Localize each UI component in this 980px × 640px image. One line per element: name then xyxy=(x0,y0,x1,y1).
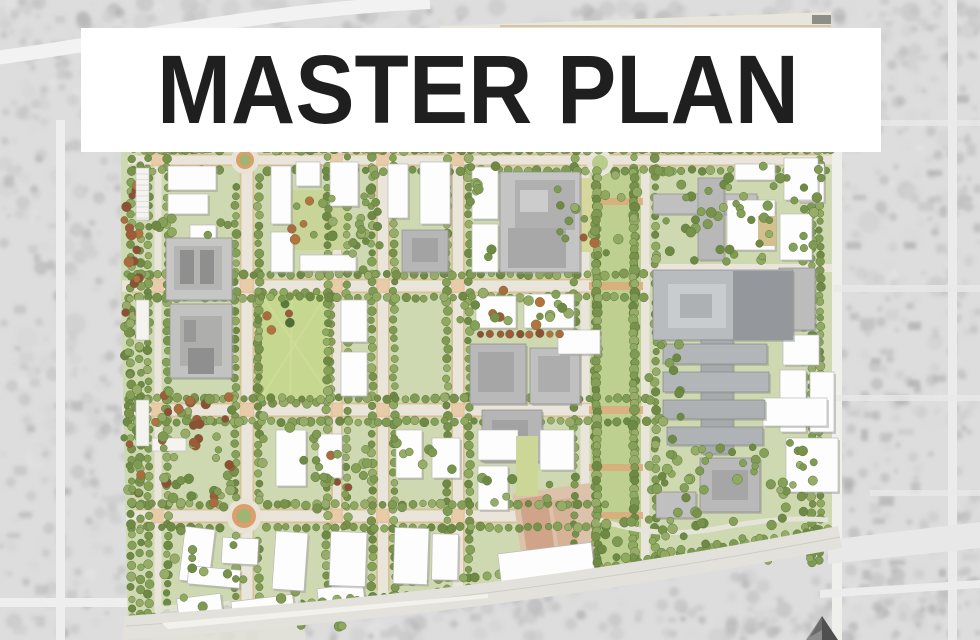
svg-text:MASTER PLAN: MASTER PLAN xyxy=(157,35,799,144)
